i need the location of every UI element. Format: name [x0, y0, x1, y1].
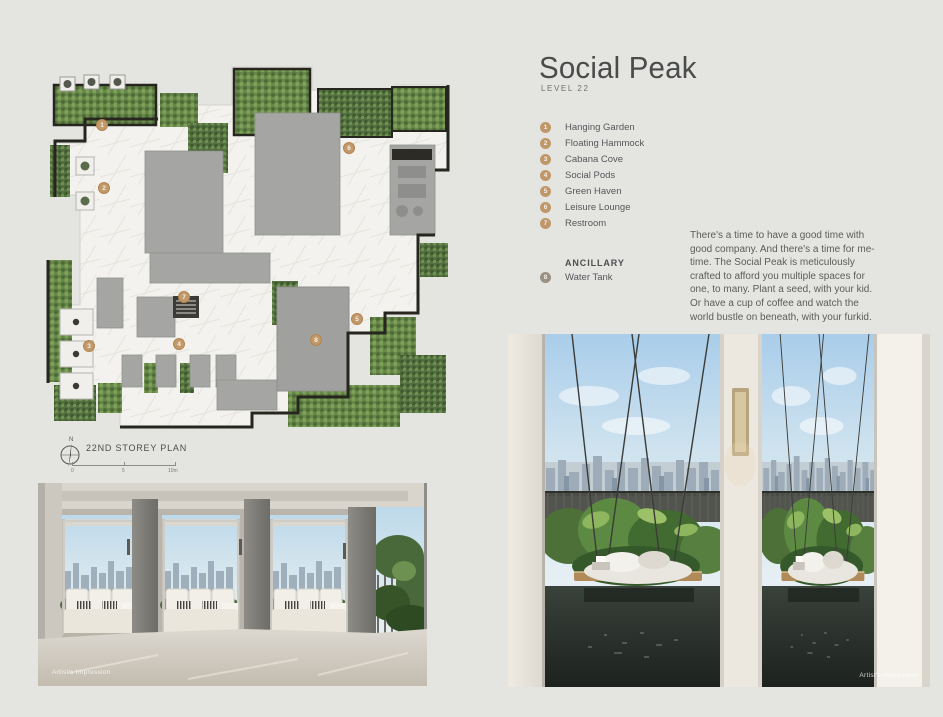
cabana-render-drawing	[38, 483, 427, 686]
amenity-legend: 1 Hanging Garden 2 Floating Hammock 3 Ca…	[540, 119, 644, 231]
legend-label: Restroom	[565, 218, 606, 229]
legend-number-badge: 2	[540, 138, 551, 149]
legend-item: 4 Social Pods	[540, 167, 644, 183]
legend-label: Floating Hammock	[565, 138, 644, 149]
legend-label: Green Haven	[565, 186, 622, 197]
plan-marker: 7	[178, 291, 190, 303]
legend-item: 5 Green Haven	[540, 183, 644, 199]
hammock-render-image: Artist's Impression	[508, 334, 930, 687]
floor-plan: 1 2 3 4 5 6 7 8	[40, 65, 450, 430]
plan-marker: 5	[351, 313, 363, 325]
scale-bar: 0 5 10m	[72, 462, 176, 476]
compass-north-label: N	[69, 437, 73, 443]
ancillary-number-badge: 8	[540, 272, 551, 283]
plan-footer: N 22ND STOREY PLAN 0 5 10m	[58, 432, 228, 484]
legend-item: 6 Leisure Lounge	[540, 199, 644, 215]
plan-marker: 1	[96, 119, 108, 131]
page-title: Social Peak	[539, 50, 697, 86]
hammock-render-drawing	[508, 334, 930, 687]
plan-marker: 8	[310, 334, 322, 346]
legend-item: 7 Restroom	[540, 215, 644, 231]
legend-number-badge: 4	[540, 170, 551, 181]
plan-markers: 1 2 3 4 5 6 7 8	[40, 65, 450, 430]
plan-marker: 6	[343, 142, 355, 154]
scale-label-5: 5	[122, 468, 125, 474]
legend-number-badge: 3	[540, 154, 551, 165]
plan-marker: 3	[83, 340, 95, 352]
legend-label: Hanging Garden	[565, 122, 635, 133]
legend-number-badge: 7	[540, 218, 551, 229]
legend-number-badge: 5	[540, 186, 551, 197]
plan-marker: 2	[98, 182, 110, 194]
plan-caption: 22ND STOREY PLAN	[86, 443, 187, 453]
legend-item: 1 Hanging Garden	[540, 119, 644, 135]
description-paragraph: There's a time to have a good time with …	[690, 229, 882, 324]
ancillary-label: Water Tank	[565, 272, 613, 283]
artists-impression-caption: Artist's Impression	[52, 669, 111, 676]
scale-label-10m: 10m	[168, 468, 178, 474]
legend-item: 2 Floating Hammock	[540, 135, 644, 151]
legend-item: 3 Cabana Cove	[540, 151, 644, 167]
legend-label: Cabana Cove	[565, 154, 623, 165]
artists-impression-caption: Artist's Impression	[859, 672, 918, 679]
legend-label: Social Pods	[565, 170, 615, 181]
legend-number-badge: 6	[540, 202, 551, 213]
legend-number-badge: 1	[540, 122, 551, 133]
ancillary-legend: 8 Water Tank	[540, 269, 613, 285]
scale-label-0: 0	[71, 468, 74, 474]
cabana-render-image: Artist's Impression	[38, 483, 427, 686]
ancillary-heading: ANCILLARY	[565, 258, 625, 268]
ancillary-item: 8 Water Tank	[540, 269, 613, 285]
legend-label: Leisure Lounge	[565, 202, 631, 213]
page-subtitle: LEVEL 22	[541, 84, 590, 93]
plan-marker: 4	[173, 338, 185, 350]
